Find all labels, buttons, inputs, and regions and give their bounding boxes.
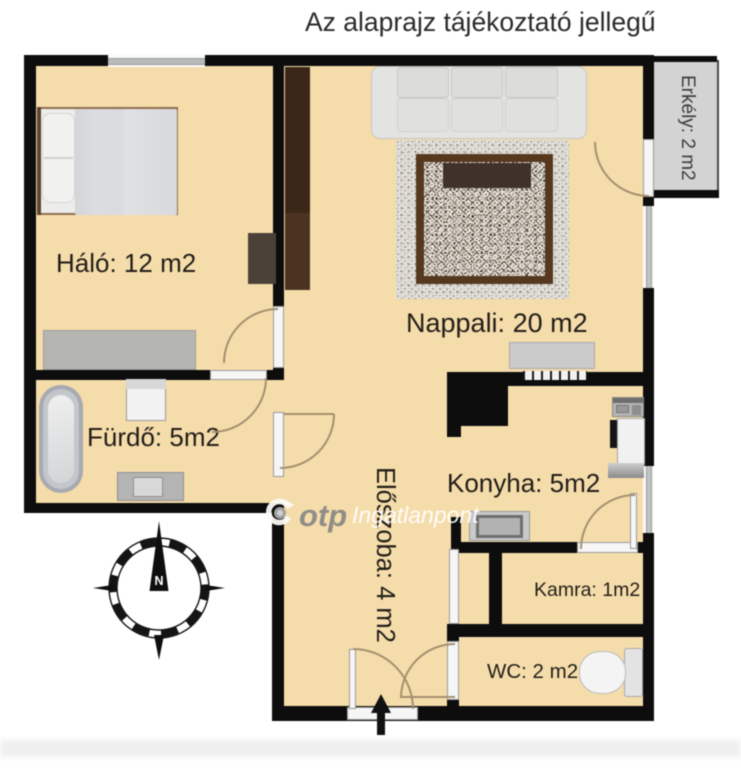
svg-text:N: N [154, 574, 163, 588]
